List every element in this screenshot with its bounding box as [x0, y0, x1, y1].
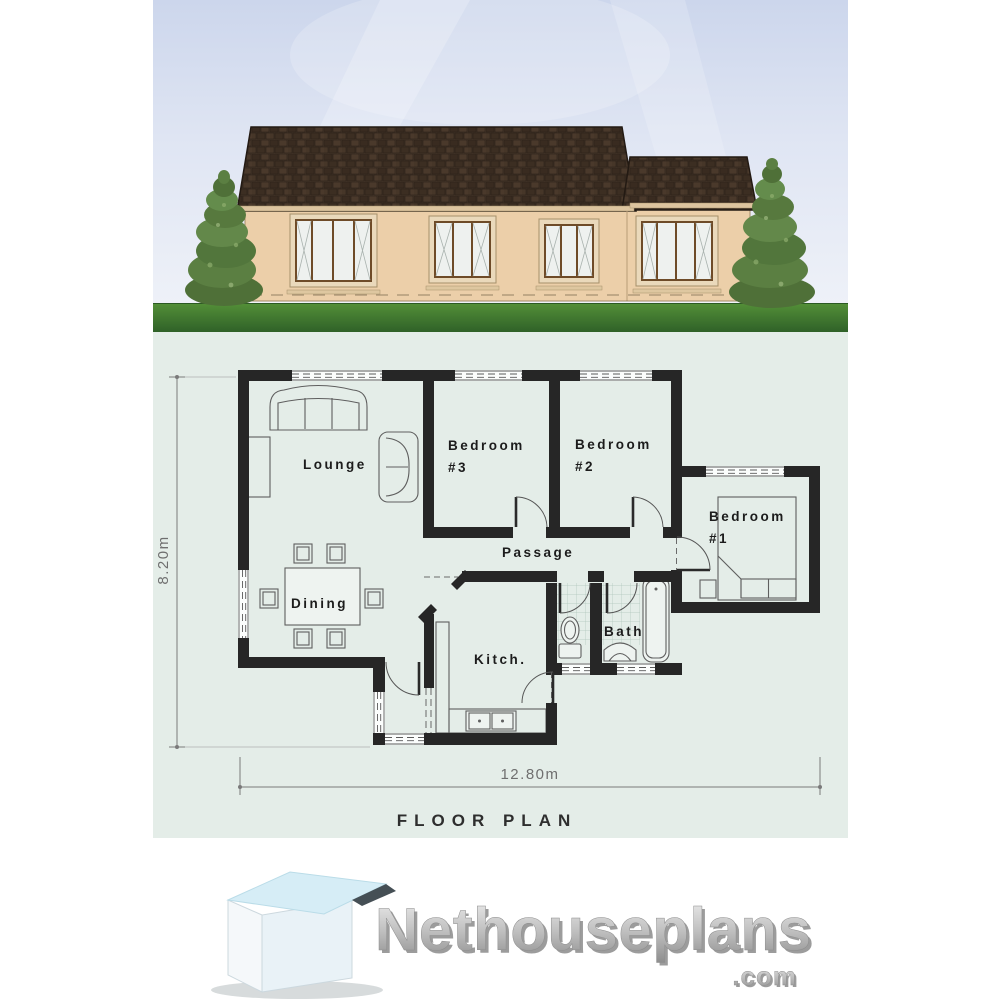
logo: Nethouseplans Nethouseplans Nethouseplan… — [0, 838, 1000, 1000]
window-1 — [287, 214, 380, 294]
basin — [604, 643, 636, 661]
window-bedroom2-top — [580, 370, 652, 381]
room-label-lounge: Lounge — [303, 457, 367, 472]
kitchen-counter — [436, 622, 546, 733]
dim-vertical: 8.20m — [155, 375, 370, 749]
window-bedroom1-top — [706, 466, 784, 477]
logo-cube-icon — [211, 872, 396, 999]
bathtub — [643, 577, 669, 662]
lounge-console — [247, 437, 270, 497]
room-label-bedroom3-line2: #3 — [448, 460, 468, 475]
floor-plan-drawing: 8.20m 12.80m Lounge Bedroom #3 Bedroom #… — [153, 332, 848, 838]
window-2 — [426, 216, 499, 290]
window-dining-left — [238, 570, 249, 638]
lounge-chair — [379, 432, 418, 502]
window-bedroom3-top — [455, 370, 522, 381]
room-label-bath: Bath — [604, 624, 644, 639]
floor-plan: 8.20m 12.80m Lounge Bedroom #3 Bedroom #… — [153, 332, 848, 838]
main-roof — [237, 127, 636, 211]
toilet — [559, 617, 581, 658]
window-4 — [633, 216, 721, 293]
dim-height-label: 8.20m — [155, 535, 172, 584]
brand-text: Nethouseplans Nethouseplans Nethouseplan… — [373, 894, 815, 966]
room-label-bedroom1-line1: Bedroom — [709, 509, 786, 524]
floor-plan-caption: FLOOR PLAN — [397, 811, 578, 830]
door-dining-lobby — [386, 662, 419, 695]
window-bath-bottom — [617, 663, 655, 675]
door-kitchen-back — [522, 672, 553, 703]
door-bedroom2 — [633, 497, 663, 527]
logo-drawing: Nethouseplans Nethouseplans Nethouseplan… — [0, 838, 1000, 1000]
window-lounge-top — [292, 370, 382, 381]
room-label-kitchen: Kitch. — [474, 652, 527, 667]
window-lobby-left — [373, 692, 385, 733]
window-lobby-bottom — [385, 733, 424, 745]
window-3 — [536, 219, 602, 290]
door-bedroom3 — [516, 497, 547, 527]
kitchen-sink — [466, 711, 516, 731]
dim-horizontal: 12.80m — [238, 757, 822, 795]
room-label-bedroom1-line2: #1 — [709, 531, 729, 546]
lounge-sofa — [270, 386, 367, 431]
door-bedroom1 — [677, 537, 710, 570]
main-fascia — [240, 206, 634, 211]
room-label-bedroom3-line1: Bedroom — [448, 438, 525, 453]
dim-width-label: 12.80m — [500, 766, 559, 783]
room-label-passage: Passage — [502, 545, 574, 560]
window-wc-bottom — [562, 663, 590, 675]
grass — [153, 303, 848, 332]
front-elevation — [153, 0, 848, 332]
room-label-dining: Dining — [291, 596, 348, 611]
brand-tld: .com .com .com — [731, 960, 799, 993]
nightstand — [700, 580, 716, 598]
brand-tld-main: .com — [732, 961, 797, 991]
room-label-bedroom2-line1: Bedroom — [575, 437, 652, 452]
extension-fascia — [630, 203, 754, 208]
window-kitchen-left — [426, 688, 431, 733]
room-label-bedroom2-line2: #2 — [575, 459, 595, 474]
extension-roof — [622, 157, 757, 210]
page: 8.20m 12.80m Lounge Bedroom #3 Bedroom #… — [0, 0, 1000, 1000]
elevation-drawing — [153, 0, 848, 332]
brand-text-main: Nethouseplans — [375, 896, 812, 963]
